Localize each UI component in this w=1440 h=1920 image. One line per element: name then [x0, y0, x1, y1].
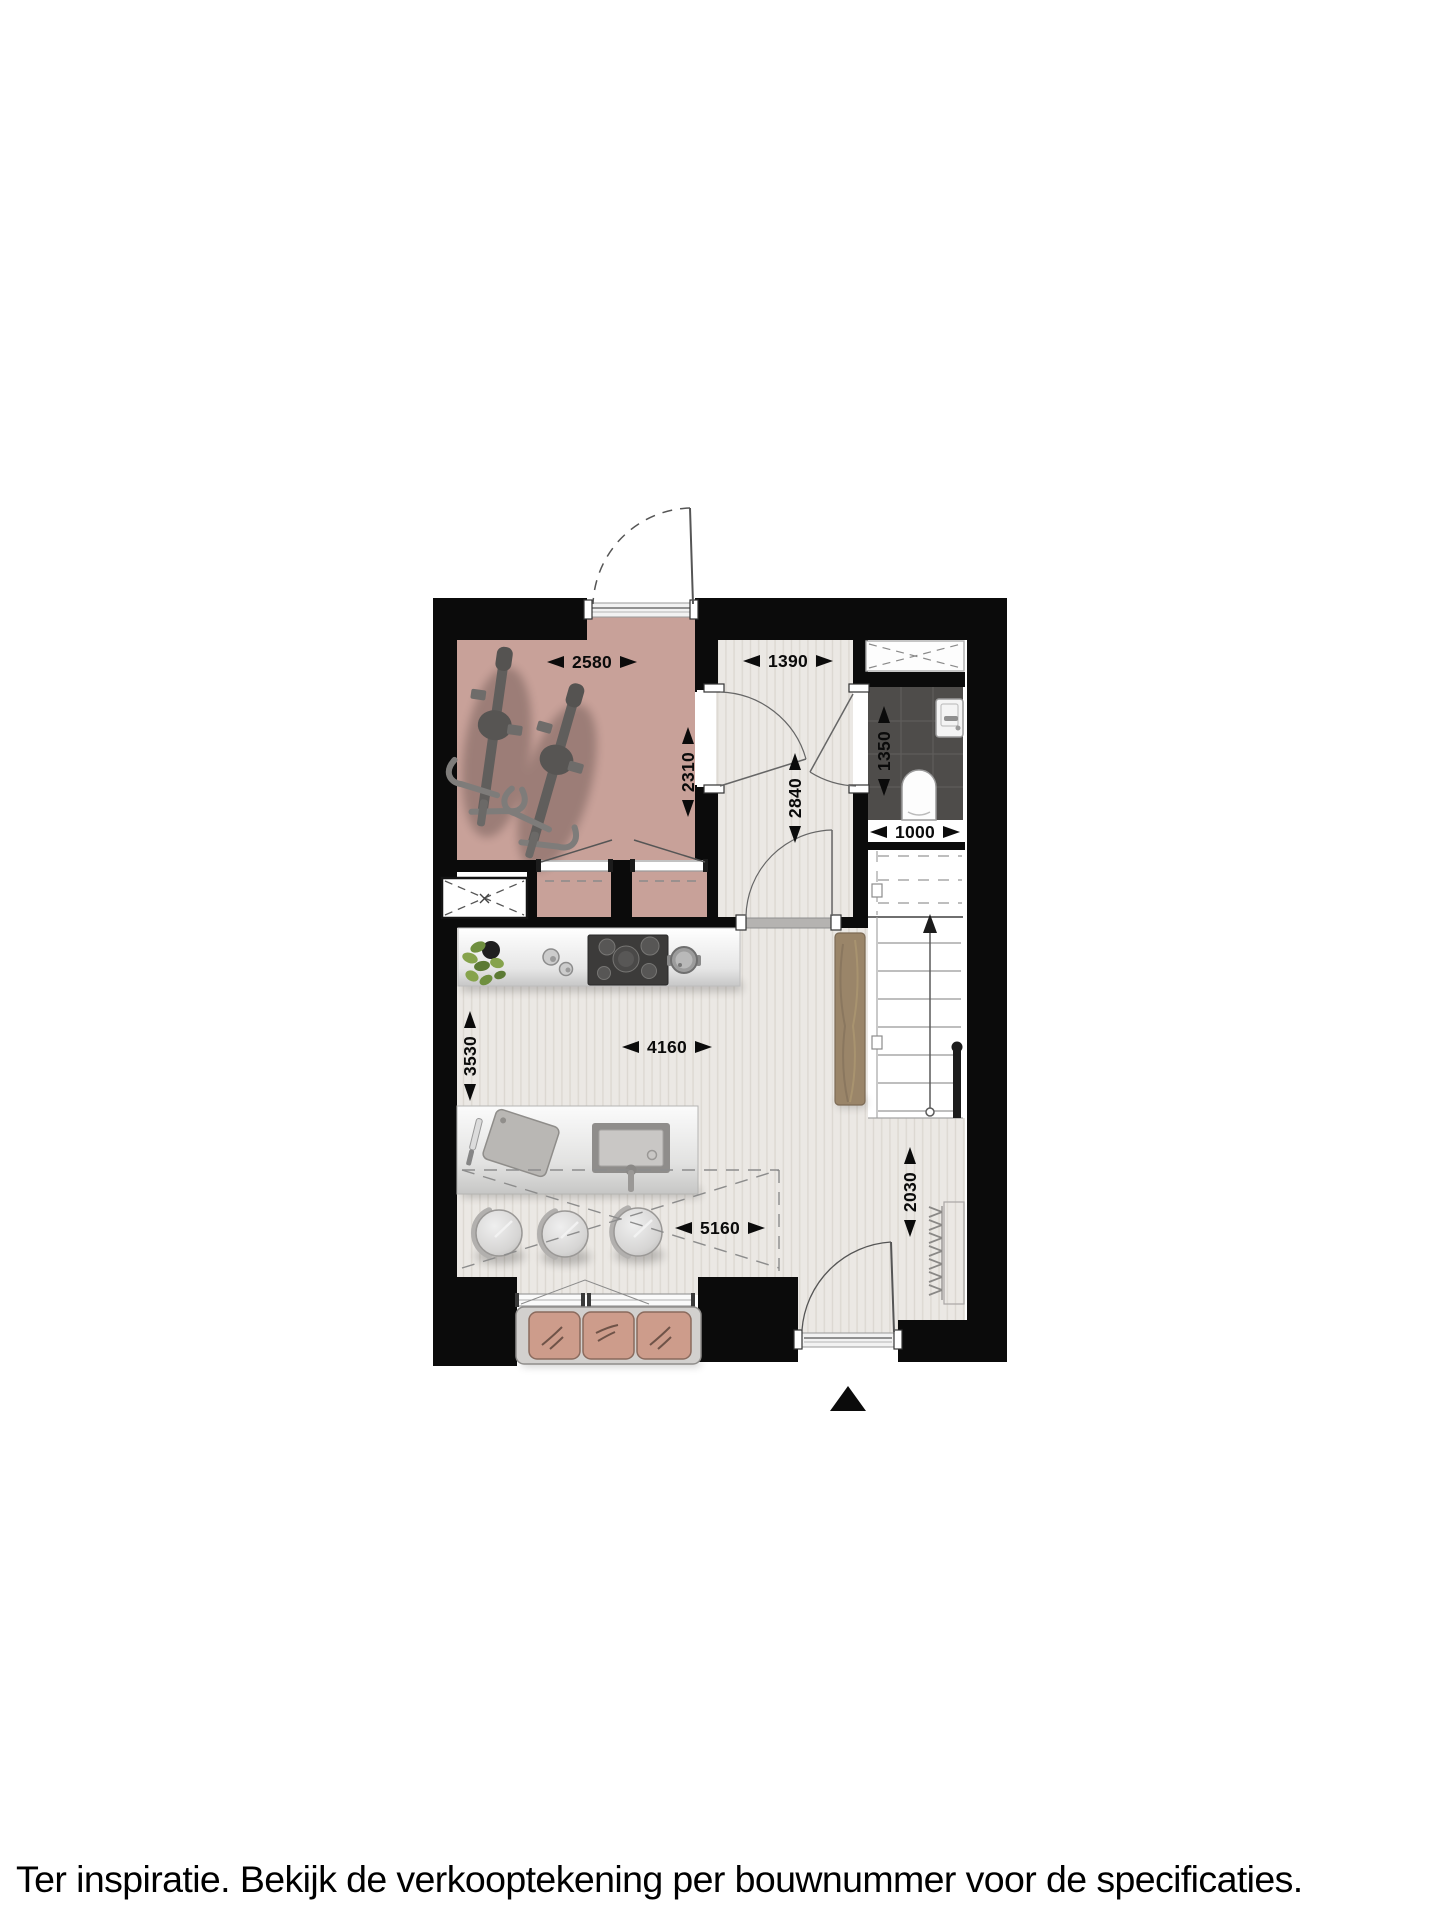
north-arrow-icon	[830, 1386, 866, 1411]
wardrobe	[835, 933, 865, 1105]
meter-cupboard	[442, 878, 527, 918]
floorplan-page: 2580 1390 2310 2840 1350 1000 3530 4160 …	[0, 0, 1440, 1920]
svg-text:2030: 2030	[900, 1172, 920, 1212]
svg-text:3530: 3530	[460, 1036, 480, 1076]
svg-text:5160: 5160	[700, 1218, 740, 1238]
svg-text:1390: 1390	[768, 651, 808, 671]
svg-text:1000: 1000	[895, 822, 935, 842]
svg-text:1350: 1350	[874, 731, 894, 771]
washbasin	[936, 699, 963, 737]
svg-text:2580: 2580	[572, 652, 612, 672]
caption: Ter inspiratie. Bekijk de verkooptekenin…	[16, 1858, 1436, 1901]
svg-text:2310: 2310	[678, 752, 698, 792]
wc-window	[866, 641, 964, 671]
toilet	[902, 770, 936, 820]
kitchen-island	[457, 1106, 698, 1194]
floor-plan: 2580 1390 2310 2840 1350 1000 3530 4160 …	[0, 0, 1440, 1920]
cooktop	[588, 935, 668, 985]
kitchen-counter	[458, 928, 740, 987]
svg-text:4160: 4160	[647, 1037, 687, 1057]
sofa	[516, 1307, 701, 1364]
front-door	[584, 508, 698, 619]
svg-text:2840: 2840	[785, 778, 805, 818]
